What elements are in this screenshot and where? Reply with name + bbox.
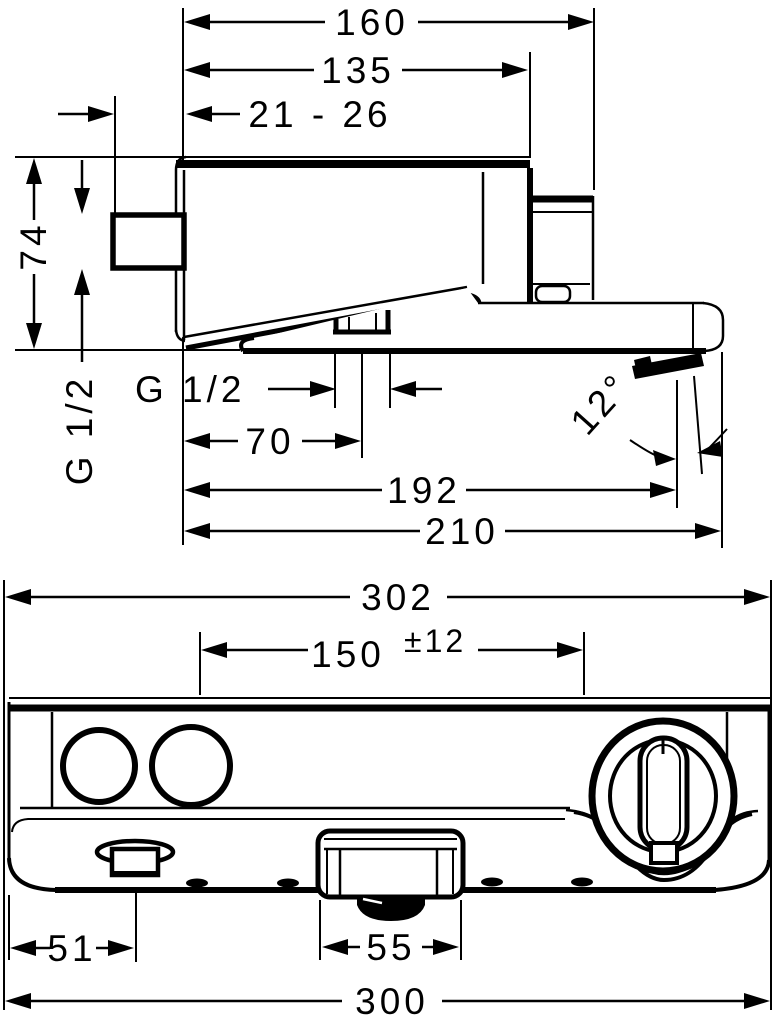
dim-300-label: 300 — [355, 981, 429, 1022]
inlet-thread-label: G 1/2 — [59, 375, 100, 486]
technical-drawing-page: 160 135 21 - 26 74 — [0, 0, 781, 1024]
dim-hose-g12: G 1/2 — [135, 369, 442, 410]
dim-300: 300 — [5, 981, 770, 1022]
dim-160-label: 160 — [335, 2, 409, 43]
dim-21-26: 21 - 26 — [58, 94, 392, 135]
dim-210: 210 — [184, 511, 721, 552]
dim-12deg: 12° — [563, 365, 727, 474]
dim-135-label: 135 — [321, 50, 395, 91]
drawing-canvas: 160 135 21 - 26 74 — [0, 0, 781, 1024]
button-right — [152, 727, 230, 805]
dim-74-label: 74 — [13, 221, 54, 270]
dim-55: 55 — [322, 927, 459, 968]
dim-74: 74 — [13, 158, 54, 349]
dim-51: 51 — [10, 928, 134, 969]
wall-union-block — [533, 196, 593, 302]
dim-210-label: 210 — [425, 511, 499, 552]
dim-160: 160 — [184, 2, 594, 43]
dim-inlet-g12: G 1/2 — [59, 160, 100, 485]
temperature-knob — [592, 721, 734, 871]
spray-angle-label: 12° — [563, 365, 639, 443]
dim-21-26-label: 21 - 26 — [248, 94, 391, 135]
dim-55-label: 55 — [366, 927, 415, 968]
button-left — [63, 730, 135, 802]
hose-thread-label: G 1/2 — [135, 369, 246, 410]
dim-192-label: 192 — [387, 470, 461, 511]
dim-70-label: 70 — [245, 421, 294, 462]
dim-70: 70 — [184, 421, 361, 462]
front-view: 302 150 ±12 — [4, 577, 771, 1022]
knob-base-tab — [651, 843, 677, 863]
dim-135: 135 — [184, 50, 528, 91]
dim-150-label: 150 — [311, 634, 385, 675]
dim-150: 150 ±12 — [201, 623, 583, 675]
dim-302-label: 302 — [361, 577, 435, 618]
inlet-connector — [113, 215, 184, 268]
dim-51-label: 51 — [47, 928, 96, 969]
spout-front — [318, 831, 463, 921]
dim-302: 302 — [5, 577, 770, 618]
dim-192: 192 — [184, 470, 676, 511]
dim-150-tolerance: ±12 — [404, 623, 466, 659]
